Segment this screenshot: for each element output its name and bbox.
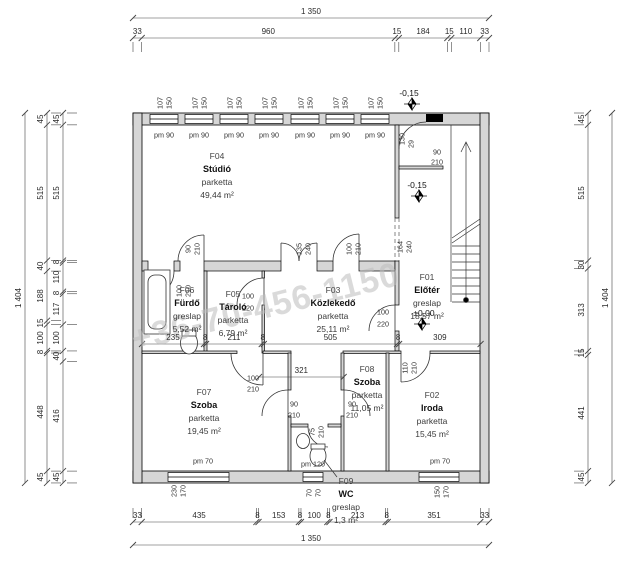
room-F01-name: Előtér xyxy=(410,284,444,297)
room-label-F08: F08Szobaparketta11,05 m² xyxy=(351,363,384,415)
room-F03-area: 25,11 m² xyxy=(310,323,355,336)
wall-right xyxy=(480,113,489,483)
room-label-F03: F03Közlekedőparketta25,11 m² xyxy=(310,284,355,336)
room-F06-floor: greslap xyxy=(173,310,202,323)
room-label-F02: F02Irodaparketta15,45 m² xyxy=(415,389,449,441)
room-F08-area: 11,05 m² xyxy=(351,402,384,415)
door-double-left-arc xyxy=(281,243,299,261)
level-marker-mid xyxy=(411,190,427,202)
wc-toilet-tank xyxy=(311,444,325,449)
room-F08-name: Szoba xyxy=(351,376,384,389)
room-label-F07: F07Szobaparketta19,45 m² xyxy=(187,386,221,438)
room-F03-floor: parketta xyxy=(310,310,355,323)
room-F02-floor: parketta xyxy=(415,415,449,428)
door-niche-arc xyxy=(399,122,426,149)
room-F09-name: WC xyxy=(332,488,360,501)
room-F02-name: Iroda xyxy=(415,402,449,415)
room-F06-id: F06 xyxy=(173,284,202,297)
room-F04-id: F04 xyxy=(200,150,234,163)
room-label-F06: F06Fürdőgreslap5,52 m² xyxy=(173,284,202,336)
room-F09-floor: greslap xyxy=(332,501,360,514)
room-F07-name: Szoba xyxy=(187,399,221,412)
room-F09-id: F09 xyxy=(332,475,360,488)
door-room7b-arc xyxy=(262,390,288,416)
room-F02-id: F02 xyxy=(415,389,449,402)
wall-left xyxy=(133,113,142,483)
staircase xyxy=(451,125,480,303)
room-F05-floor: parketta xyxy=(218,314,249,327)
room-label-F05: F05Tárolóparketta6,79 m² xyxy=(218,288,249,340)
room-F03-name: Közlekedő xyxy=(310,297,355,310)
room-F09-area: 1,3 m² xyxy=(332,514,360,527)
room-F05-id: F05 xyxy=(218,288,249,301)
room-F06-name: Fürdő xyxy=(173,297,202,310)
opening-dashes xyxy=(395,218,399,261)
door-room7-arc xyxy=(231,353,263,385)
room-F01-id: F01 xyxy=(410,271,444,284)
room-label-F04: F04Stúdióparketta49,44 m² xyxy=(200,150,234,202)
room-F04-area: 49,44 m² xyxy=(200,189,234,202)
door-studio-arc xyxy=(178,235,204,261)
room-F04-name: Stúdió xyxy=(200,163,234,176)
stair-start-dot xyxy=(464,298,469,303)
room-F08-id: F08 xyxy=(351,363,384,376)
room-F01-area: 18,57 m² xyxy=(410,310,444,323)
wc-sink xyxy=(297,434,310,449)
level-marker-upper xyxy=(404,98,420,110)
door-hall-arc xyxy=(333,234,359,261)
room-F04-floor: parketta xyxy=(200,176,234,189)
door-entry-arc xyxy=(369,305,395,331)
floor-plan: +36-70-456-1150 107150pm 90107150pm 9010… xyxy=(0,0,640,571)
room-F03-id: F03 xyxy=(310,284,355,297)
room-F08-floor: parketta xyxy=(351,389,384,402)
room-label-F09: F09WCgreslap1,3 m² xyxy=(332,475,360,527)
niche-door-leaf xyxy=(426,114,443,122)
door-double-right-arc xyxy=(299,243,317,261)
room-F07-area: 19,45 m² xyxy=(187,425,221,438)
room-F05-area: 6,79 m² xyxy=(218,327,249,340)
room-F01-floor: greslap xyxy=(410,297,444,310)
room-label-F01: F01Előtérgreslap18,57 m² xyxy=(410,271,444,323)
room-F07-id: F07 xyxy=(187,386,221,399)
room-F05-name: Tároló xyxy=(218,301,249,314)
room-F06-area: 5,52 m² xyxy=(173,323,202,336)
door-office-arc xyxy=(401,353,430,382)
room-F07-floor: parketta xyxy=(187,412,221,425)
room-F02-area: 15,45 m² xyxy=(415,428,449,441)
